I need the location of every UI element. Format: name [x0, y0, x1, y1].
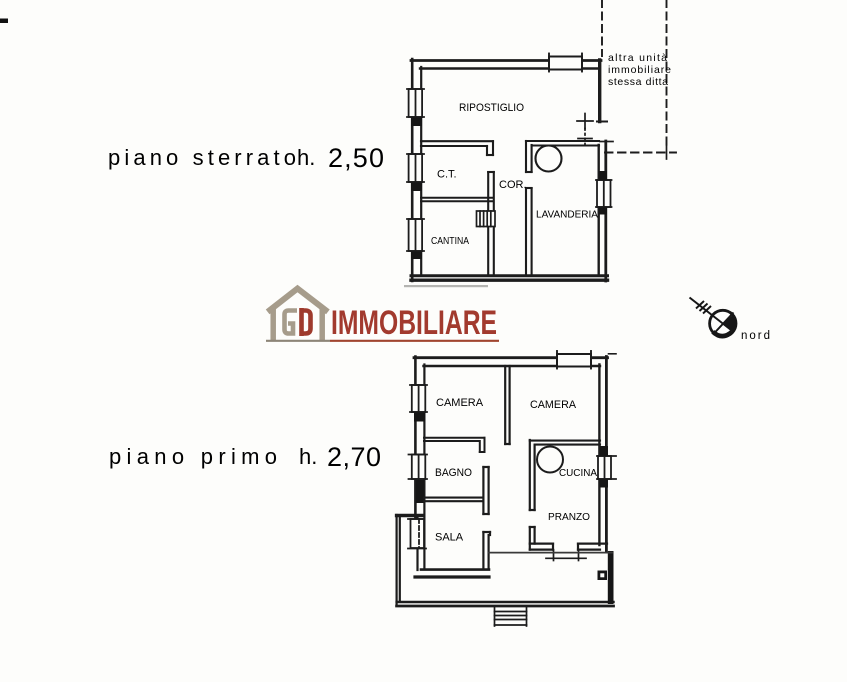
svg-text:CAMERA: CAMERA	[436, 397, 484, 409]
svg-text:C.T.: C.T.	[437, 169, 457, 181]
svg-text:SALA: SALA	[435, 532, 464, 544]
svg-text:CANTINA: CANTINA	[431, 235, 469, 247]
svg-text:LAVANDERIA: LAVANDERIA	[536, 209, 598, 221]
svg-text:CAMERA: CAMERA	[530, 399, 577, 411]
svg-text:2,50: 2,50	[328, 143, 384, 173]
svg-text:RIPOSTIGLIO: RIPOSTIGLIO	[459, 102, 524, 114]
svg-text:h.: h.	[297, 145, 315, 170]
svg-text:altra unità: altra unità	[608, 52, 667, 64]
svg-text:BAGNO: BAGNO	[435, 467, 472, 479]
svg-text:2,70: 2,70	[327, 442, 381, 472]
svg-text:stessa ditta: stessa ditta	[608, 76, 668, 88]
svg-text:immobiliare: immobiliare	[608, 64, 671, 76]
svg-text:COR.: COR.	[499, 179, 527, 191]
svg-text:PRANZO: PRANZO	[548, 511, 590, 523]
svg-text:h.: h.	[299, 444, 317, 469]
svg-text:nord: nord	[741, 330, 770, 342]
svg-text:CUCINA: CUCINA	[559, 467, 597, 479]
svg-text:piano sterrato: piano sterrato	[108, 145, 296, 170]
svg-text:IMMOBILIARE: IMMOBILIARE	[331, 304, 497, 342]
